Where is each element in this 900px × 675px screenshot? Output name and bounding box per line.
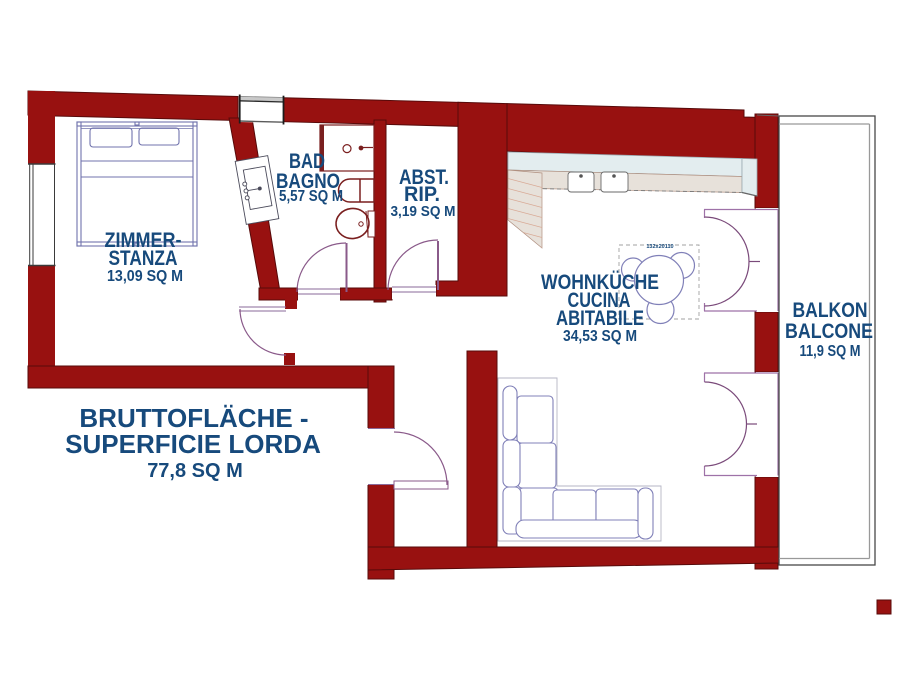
svg-text:132x20110: 132x20110 — [646, 244, 673, 250]
svg-text:BALCONE: BALCONE — [785, 320, 873, 343]
svg-text:ABITABILE: ABITABILE — [556, 307, 644, 330]
svg-text:13,09 SQ M: 13,09 SQ M — [107, 268, 183, 285]
svg-text:11,9 SQ M: 11,9 SQ M — [800, 343, 861, 360]
svg-text:STANZA: STANZA — [109, 247, 178, 270]
svg-text:34,53 SQ M: 34,53 SQ M — [563, 328, 637, 345]
svg-text:BALKON: BALKON — [793, 299, 868, 322]
svg-text:3,19 SQ M: 3,19 SQ M — [391, 203, 456, 220]
svg-text:77,8 SQ M: 77,8 SQ M — [147, 460, 243, 482]
svg-text:5,57 SQ M: 5,57 SQ M — [279, 188, 343, 205]
svg-text:SUPERFICIE LORDA: SUPERFICIE LORDA — [65, 429, 321, 459]
